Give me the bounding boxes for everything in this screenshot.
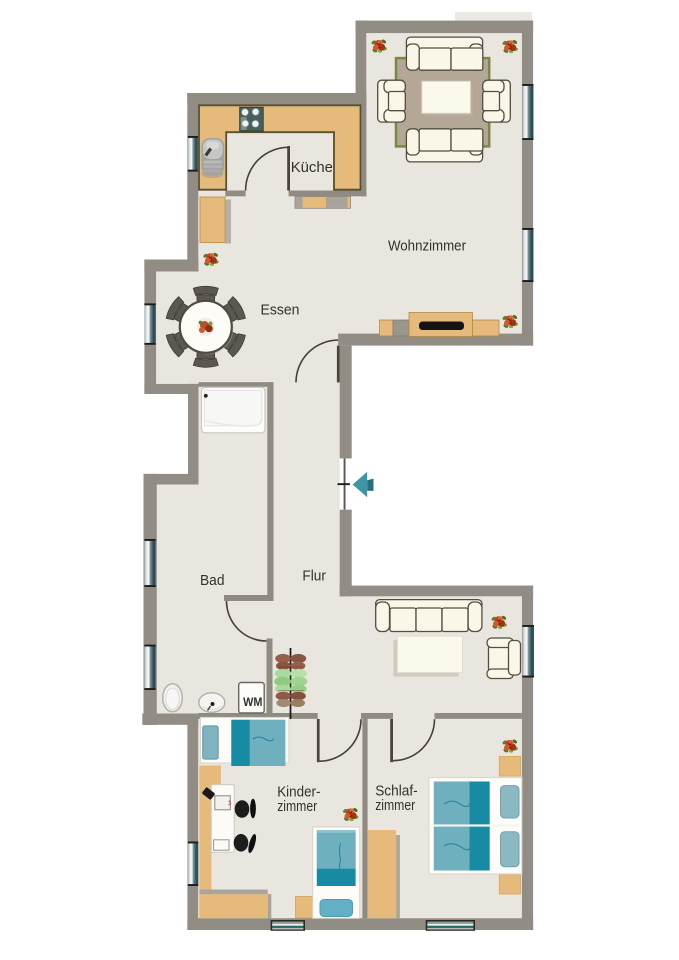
svg-text:Flur: Flur [302, 568, 326, 585]
svg-text:zimmer: zimmer [277, 798, 317, 815]
svg-text:Essen: Essen [261, 302, 300, 319]
svg-text:Küche: Küche [291, 159, 333, 176]
svg-text:Bad: Bad [200, 572, 225, 589]
svg-text:Wohnzimmer: Wohnzimmer [388, 237, 466, 254]
svg-text:WM: WM [243, 697, 262, 709]
svg-text:zimmer: zimmer [375, 797, 415, 814]
